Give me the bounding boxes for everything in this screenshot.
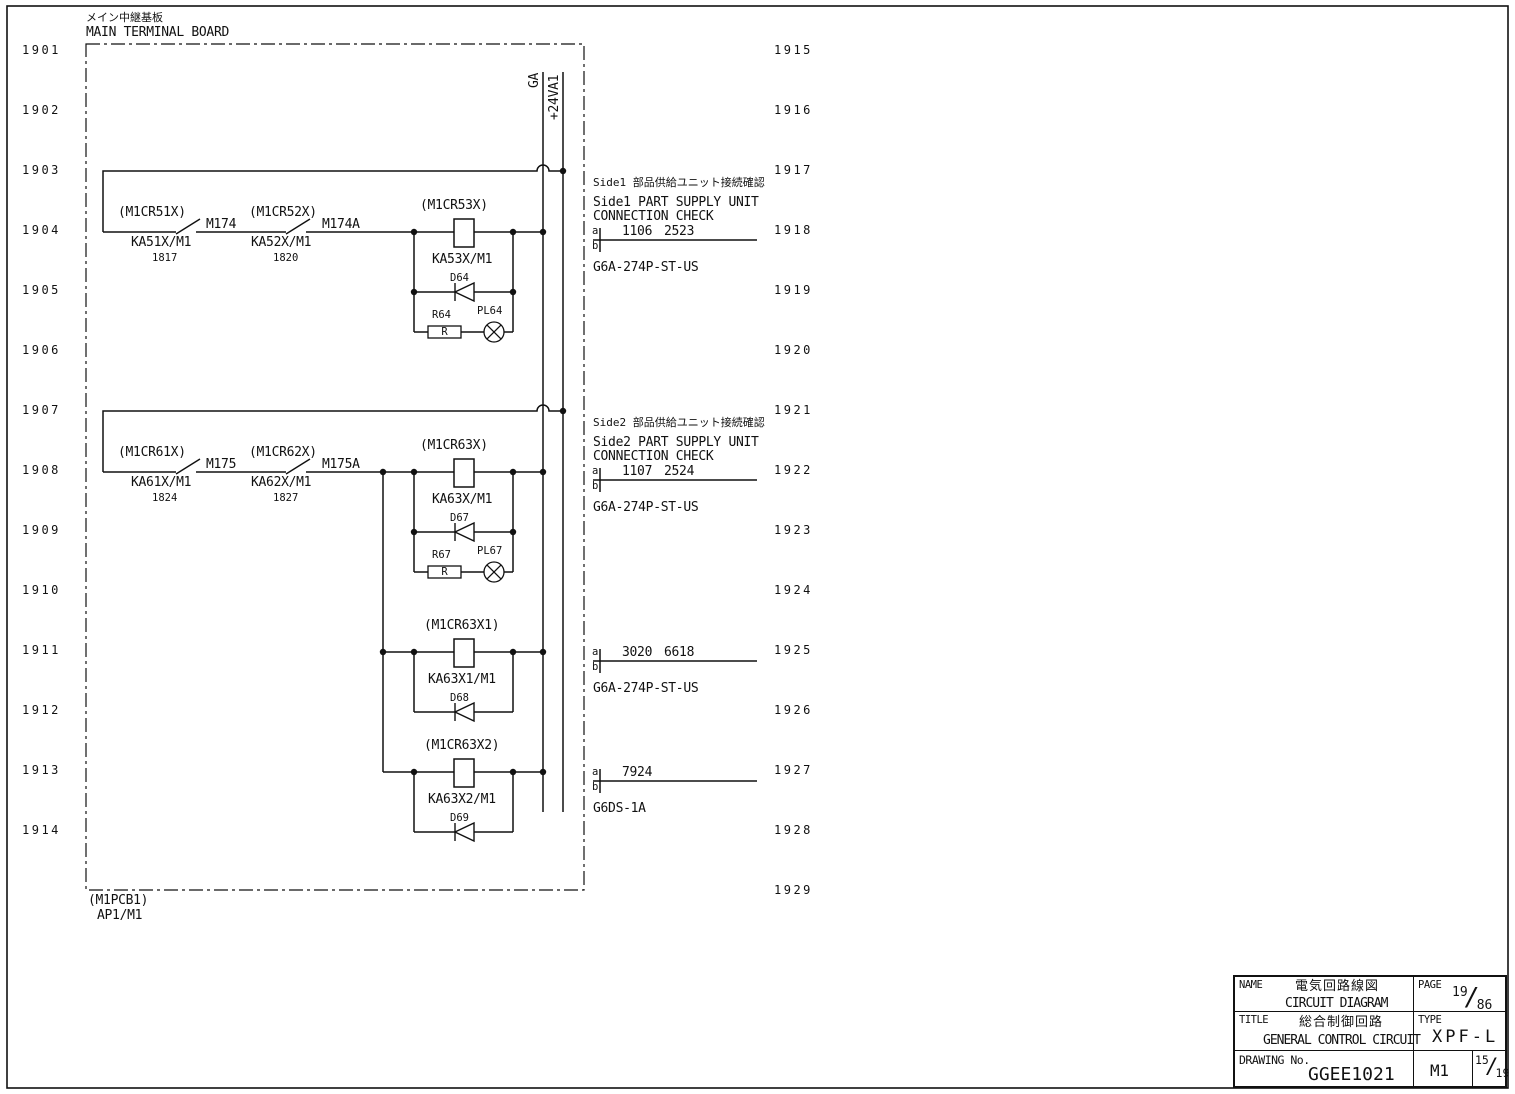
terminal-number: 1106 [622, 225, 652, 239]
terminal-b: b [592, 782, 598, 794]
type-value: XPF-L [1432, 1028, 1498, 1047]
bus-label-ga: GA [528, 73, 542, 88]
diode-label: D68 [450, 693, 469, 705]
diode-label: D69 [450, 813, 469, 825]
contact-ref: (M1CR52X) [249, 206, 317, 220]
page-border [7, 6, 1508, 1088]
part-number: G6A-274P-ST-US [593, 682, 698, 696]
bus-label-24v: +24VA1 [548, 75, 562, 120]
annotation-jp: Side2 部品供給ユニット接続確認 [593, 417, 765, 429]
contact-pin: 1817 [152, 253, 177, 265]
wire-label: M174A [322, 218, 360, 232]
line-number: 1920 [774, 344, 813, 357]
wire-label: M175A [322, 458, 360, 472]
terminal-number: 2524 [664, 465, 694, 479]
line-number: 1918 [774, 224, 813, 237]
contact-ref: (M1CR62X) [249, 446, 317, 460]
diode-label: D64 [450, 273, 469, 285]
sheet-cell: 15/19 [1472, 1051, 1505, 1086]
page-label: PAGE [1418, 979, 1441, 991]
coil-ref: (M1CR63X2) [424, 739, 499, 753]
doc-title-en: GENERAL CONTROL CIRCUIT [1263, 1034, 1420, 1048]
line-number: 1929 [774, 884, 813, 897]
terminal-number: 1107 [622, 465, 652, 479]
line-number: 1917 [774, 164, 813, 177]
terminal-number: 2523 [664, 225, 694, 239]
contact-ref: (M1CR61X) [118, 446, 186, 460]
terminal-number: 7924 [622, 766, 652, 780]
coil-name: KA63X2/M1 [428, 793, 496, 807]
terminal-b: b [592, 241, 598, 253]
contact-name: KA51X/M1 [131, 236, 191, 250]
contact-pin: 1827 [273, 493, 298, 505]
line-number: 1923 [774, 524, 813, 537]
coil-name: KA63X/M1 [432, 493, 492, 507]
terminal-b: b [592, 481, 598, 493]
doc-name-jp: 電気回路線図 [1295, 980, 1379, 994]
line-number: 1912 [22, 704, 61, 717]
coil-ref: (M1CR53X) [420, 199, 488, 213]
terminal-a: a [592, 767, 598, 779]
terminal-number: 3020 [622, 646, 652, 660]
title-block-row-title: TITLE 総合制御回路 GENERAL CONTROL CIRCUIT TYP… [1235, 1012, 1505, 1051]
line-number: 1911 [22, 644, 61, 657]
schematic-sheet: 1901 1902 1903 1904 1905 1906 1907 1908 … [0, 0, 1515, 1094]
board-ref: (M1PCB1) [88, 894, 148, 908]
wire-label: M174 [206, 218, 236, 232]
terminal-b: b [592, 662, 598, 674]
line-number: 1925 [774, 644, 813, 657]
line-number: 1916 [774, 104, 813, 117]
type-label: TYPE [1418, 1014, 1441, 1026]
sheet-fraction: 15/19 [1475, 1053, 1509, 1080]
part-number: G6DS-1A [593, 802, 646, 816]
board-name-jp: メイン中継基板 [86, 12, 163, 24]
line-number: 1906 [22, 344, 61, 357]
doc-name-en: CIRCUIT DIAGRAM [1285, 997, 1387, 1011]
power-buses [543, 72, 563, 812]
line-number: 1907 [22, 404, 61, 417]
line-number: 1922 [774, 464, 813, 477]
line-number: 1928 [774, 824, 813, 837]
line-number: 1901 [22, 44, 61, 57]
line-number: 1915 [774, 44, 813, 57]
line-number: 1921 [774, 404, 813, 417]
title-label: TITLE [1239, 1014, 1268, 1026]
board-device-name: AP1/M1 [97, 909, 142, 923]
title-block-row-drawing: DRAWING No. GGEE1021 M1 15/19 [1235, 1051, 1505, 1086]
coil-ref: (M1CR63X) [420, 439, 488, 453]
line-number: 1919 [774, 284, 813, 297]
wire-label: M175 [206, 458, 236, 472]
contact-name: KA52X/M1 [251, 236, 311, 250]
drawing-label: DRAWING No. [1239, 1053, 1310, 1067]
terminal-number: 6618 [664, 646, 694, 660]
contact-pin: 1820 [273, 253, 298, 265]
line-number: 1902 [22, 104, 61, 117]
page-cell: PAGE 19/86 [1413, 977, 1505, 1011]
board-name-en: MAIN TERMINAL BOARD [86, 26, 229, 40]
coil-name: KA53X/M1 [432, 253, 492, 267]
resistor-label: R64 [432, 310, 451, 322]
name-label: NAME [1239, 979, 1262, 991]
line-number: 1904 [22, 224, 61, 237]
title-block-row-name: NAME 電気回路線図 CIRCUIT DIAGRAM PAGE 19/86 [1235, 977, 1505, 1012]
coil-name: KA63X1/M1 [428, 673, 496, 687]
line-number: 1903 [22, 164, 61, 177]
line-number: 1914 [22, 824, 61, 837]
line-number: 1927 [774, 764, 813, 777]
line-number: 1910 [22, 584, 61, 597]
diode-label: D67 [450, 513, 469, 525]
terminal-a: a [592, 226, 598, 238]
page-fraction: 19/86 [1452, 982, 1492, 1013]
resistor-symbol-text: R [428, 326, 461, 338]
doc-title-jp: 総合制御回路 [1299, 1016, 1383, 1030]
coil-ref: (M1CR63X1) [424, 619, 499, 633]
unit-value: M1 [1430, 1062, 1449, 1080]
terminal-a: a [592, 466, 598, 478]
lamp-label: PL67 [477, 546, 502, 558]
line-number: 1926 [774, 704, 813, 717]
lamp-label: PL64 [477, 306, 502, 318]
contact-name: KA62X/M1 [251, 476, 311, 490]
line-number: 1924 [774, 584, 813, 597]
annotation-jp: Side1 部品供給ユニット接続確認 [593, 177, 765, 189]
annotation-en: CONNECTION CHECK [593, 210, 713, 224]
sheet-total: 19 [1496, 1066, 1510, 1080]
diode-symbols [455, 283, 474, 841]
type-cell: TYPE XPF-L [1413, 1012, 1505, 1050]
line-number: 1908 [22, 464, 61, 477]
part-number: G6A-274P-ST-US [593, 261, 698, 275]
drawing-number: GGEE1021 [1308, 1065, 1395, 1085]
resistor-symbol-text: R [428, 566, 461, 578]
line-number: 1913 [22, 764, 61, 777]
title-block: NAME 電気回路線図 CIRCUIT DIAGRAM PAGE 19/86 T… [1233, 975, 1507, 1088]
contact-ref: (M1CR51X) [118, 206, 186, 220]
line-number: 1909 [22, 524, 61, 537]
contact-pin: 1824 [152, 493, 177, 505]
line-number: 1905 [22, 284, 61, 297]
resistor-label: R67 [432, 550, 451, 562]
annotation-en: CONNECTION CHECK [593, 450, 713, 464]
page-total: 86 [1477, 998, 1493, 1013]
part-number: G6A-274P-ST-US [593, 501, 698, 515]
circuit-linework [0, 0, 1515, 1094]
terminal-a: a [592, 647, 598, 659]
contact-name: KA61X/M1 [131, 476, 191, 490]
